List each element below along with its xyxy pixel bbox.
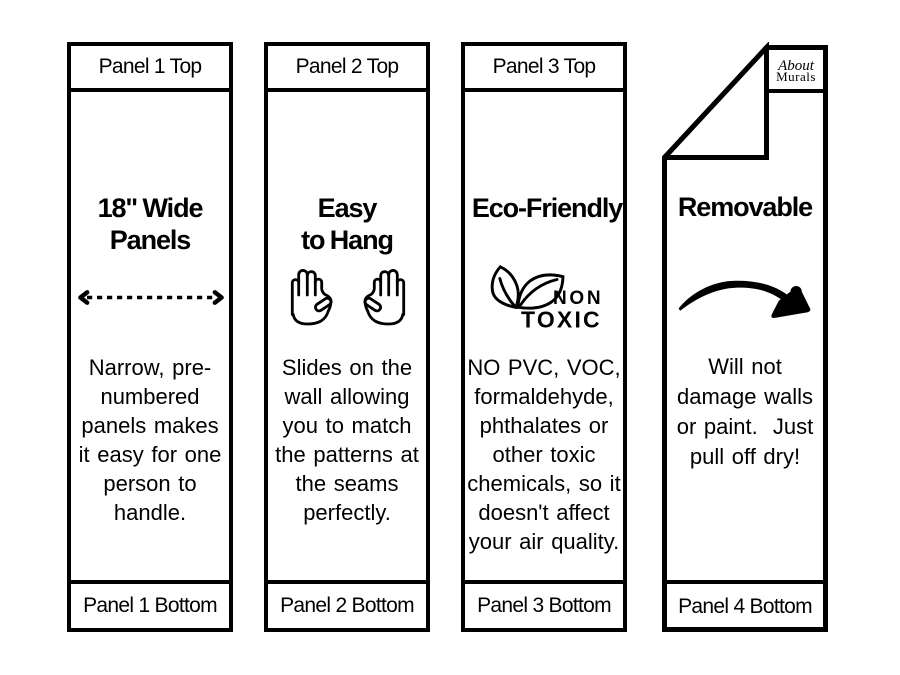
- svg-text:Murals: Murals: [776, 69, 816, 84]
- svg-text:TOXIC: TOXIC: [521, 306, 602, 332]
